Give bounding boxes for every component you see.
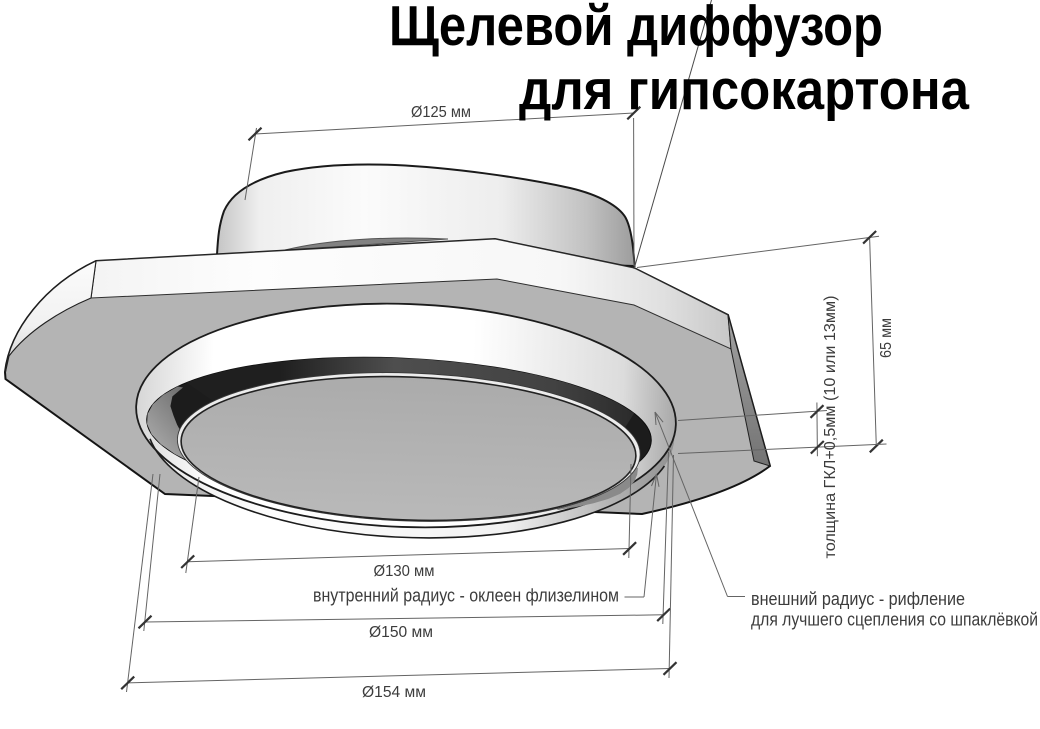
svg-text:Ø150 мм: Ø150 мм <box>369 624 433 641</box>
svg-text:Ø130 мм: Ø130 мм <box>374 563 435 580</box>
svg-text:внутренний радиус - оклеен фли: внутренний радиус - оклеен флизелином <box>313 586 619 606</box>
svg-text:внешний радиус - рифление: внешний радиус - рифление <box>751 589 965 609</box>
svg-text:Ø125 мм: Ø125 мм <box>411 104 471 121</box>
svg-text:для гипсокартона: для гипсокартона <box>519 58 970 122</box>
svg-text:65 мм: 65 мм <box>878 318 895 358</box>
svg-text:Щелевой диффузор: Щелевой диффузор <box>389 0 883 58</box>
svg-text:толщина ГКЛ+0,5мм (10 или 13мм: толщина ГКЛ+0,5мм (10 или 13мм) <box>822 296 839 559</box>
svg-text:для лучшего сцепления со шпакл: для лучшего сцепления со шпаклёвкой <box>751 610 1038 630</box>
svg-text:Ø154 мм: Ø154 мм <box>362 684 426 701</box>
